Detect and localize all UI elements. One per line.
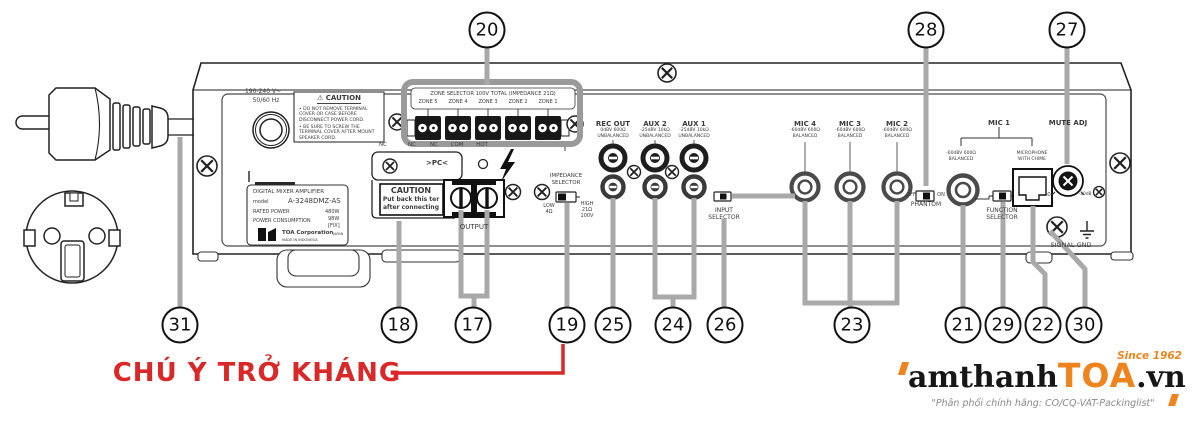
flap-caution-line: after connecting (383, 205, 439, 211)
function-selector-label: SELECTOR (986, 215, 1017, 221)
warning-pointer-line (391, 344, 563, 373)
mic3-spec: BALANCED (838, 135, 863, 140)
aux1-name: AUX 1 (682, 121, 706, 128)
terminal-label: COM (451, 143, 464, 149)
callout-20: 20 (469, 12, 506, 49)
phantom-switch (916, 191, 934, 201)
impedance-low-value: 4Ω (545, 210, 552, 215)
mute-max-label: -30dB (1078, 193, 1091, 198)
impedance-selector-label: IMPEDANCE (550, 174, 583, 180)
zone-label: ZONE 2 (508, 100, 527, 105)
callout-23: 23 (834, 307, 871, 344)
impedance-selector-label: SELECTOR (552, 181, 581, 187)
zone-label: ZONE 1 (538, 100, 557, 105)
rca-jacks (601, 146, 706, 198)
mic1-name: MIC 1 (988, 120, 1010, 127)
chassis-feet (198, 250, 1133, 287)
label-power-freq: 50/60 Hz (253, 98, 280, 104)
label-consumption-value: 98W (328, 217, 339, 222)
mic4-spec: -60dBV 600Ω (790, 129, 820, 134)
callout-31: 31 (162, 307, 199, 344)
mic3-spec: -60dBV 600Ω (835, 129, 865, 134)
callout-30: 30 (1066, 307, 1103, 344)
label-made-in: MADE IN INDONESIA (282, 239, 318, 243)
label-consumption-key: POWER CONSUMPTION (253, 219, 311, 224)
label-consumption-value2: [FIX] (328, 224, 340, 229)
zone-label: ZONE 3 (478, 100, 497, 105)
callout-17: 17 (455, 307, 492, 344)
toa-mark-icon (258, 228, 266, 241)
mic4-spec: BALANCED (793, 135, 818, 140)
mic2-spec: -60dBV 600Ω (882, 129, 912, 134)
logo-text-suffix: .vn (1136, 360, 1186, 395)
label-rated-power-key: RATED POWER (253, 210, 289, 215)
terminal-label: NC (379, 143, 387, 149)
mic1-xlr-spec: -60dBV 600Ω (946, 152, 976, 157)
zone-terminal-blocks (415, 116, 561, 140)
impedance-selector-switch (556, 192, 580, 202)
phantom-label: PHANTOM (911, 202, 941, 208)
aux1-spec: -25dBV 10kΩ (679, 129, 708, 134)
callout-25: 25 (595, 307, 632, 344)
zone-label: ZONE 5 (418, 100, 437, 105)
label-model-key: model (253, 200, 269, 205)
label-rated-power-value: 480W (325, 210, 340, 215)
panel-hole (479, 160, 488, 169)
label-device-type: DIGITAL MIXER AMPLIFIER (253, 190, 324, 196)
schuko-socket-illustration (24, 191, 120, 283)
pc-flap-label: >PC< (426, 160, 448, 167)
mic1-xlr-spec: BALANCED (949, 158, 974, 163)
rear-panel-diagram: 190-240 V~ 50/60 Hz ⚠ CAUTION • DO NOT R… (0, 0, 1200, 427)
mic3-name: MIC 3 (839, 121, 861, 128)
terminal-label: NC (430, 143, 438, 149)
mic1-rj-spec: WITH CHIME (1018, 158, 1046, 163)
input-selector-switch (714, 192, 731, 201)
callout-27: 27 (1049, 12, 1086, 49)
phantom-off-label: OFF (906, 193, 916, 198)
signal-gnd-label: SIGNAL GND (1051, 242, 1092, 249)
logo-since-text: Since 1962 (1117, 350, 1182, 362)
mute-min-label: 0 (1047, 193, 1051, 199)
rec-out-spec: UNBALANCED (597, 135, 628, 140)
output-terminal-block (444, 180, 504, 217)
output-label: OUTPUT (460, 224, 489, 231)
mic2-name: MIC 2 (886, 121, 908, 128)
label-corp-region: JAPAN (333, 233, 343, 237)
logo-accent-triangle (1168, 394, 1179, 406)
flap-caution-line: Put back this ter (383, 197, 439, 203)
label-power-rating: 190-240 V~ (245, 89, 281, 95)
function-selector-switch (989, 191, 1015, 201)
aux2-spec: UNBALANCED (639, 135, 670, 140)
callout-21: 21 (945, 307, 982, 344)
label-model-number: A-3248DMZ-AS (288, 198, 341, 205)
brand-logo: amthanhTOA.vn Since 1962 "Phân phối chín… (900, 350, 1186, 414)
caution-sticker-title: ⚠ CAUTION (317, 95, 361, 102)
label-corporation: TOA Corporation (282, 231, 333, 237)
callout-26: 26 (707, 307, 744, 344)
logo-tagline: "Phân phối chính hãng: CO/CQ-VAT-Packing… (931, 398, 1154, 409)
rec-out-spec: 0dBV 600Ω (600, 129, 625, 134)
mute-adj-label: MUTE ADJ (1049, 120, 1087, 127)
ac-inlet (253, 112, 289, 148)
input-selector-label: SELECTOR (708, 215, 739, 221)
callout-19: 19 (549, 307, 586, 344)
zone-selector-title: ZONE SELECTOR 100V TOTAL (IMPEDANCE 21Ω) (430, 92, 555, 97)
aux1-spec: UNBALANCED (678, 135, 709, 140)
caution-sticker-item: • DO NOT REMOVE TERMINAL COVER OR CASE B… (299, 107, 381, 123)
callout-22: 22 (1025, 307, 1062, 344)
power-plug-illustration (16, 88, 194, 160)
caution-sticker-item: • BE SURE TO SCREW THE TERMINAL COVER AF… (299, 125, 381, 141)
flap-caution-title: CAUTION (391, 187, 431, 195)
mic4-name: MIC 4 (794, 121, 816, 128)
phantom-on-label: ON (937, 193, 945, 198)
callout-28: 28 (908, 12, 945, 49)
aux2-name: AUX 2 (643, 121, 667, 128)
impedance-high-value: 100V (581, 214, 594, 219)
rec-out-name: REC OUT (596, 121, 630, 128)
terminal-label: HOT (476, 143, 488, 149)
zone-label: ZONE 4 (448, 100, 467, 105)
impedance-warning-text: CHÚ Ý TRỞ KHÁNG (113, 358, 402, 388)
aux2-spec: -25dBV 10kΩ (640, 129, 669, 134)
callout-29: 29 (985, 307, 1022, 344)
callout-24: 24 (655, 307, 692, 344)
mic2-spec: BALANCED (885, 135, 910, 140)
callout-18: 18 (381, 307, 418, 344)
rj45-jack (1013, 169, 1052, 206)
terminal-label: NC (408, 143, 416, 149)
mic1-rj-spec: MICROPHONE (1017, 152, 1048, 157)
logo-text-black: amthanh (908, 360, 1058, 395)
